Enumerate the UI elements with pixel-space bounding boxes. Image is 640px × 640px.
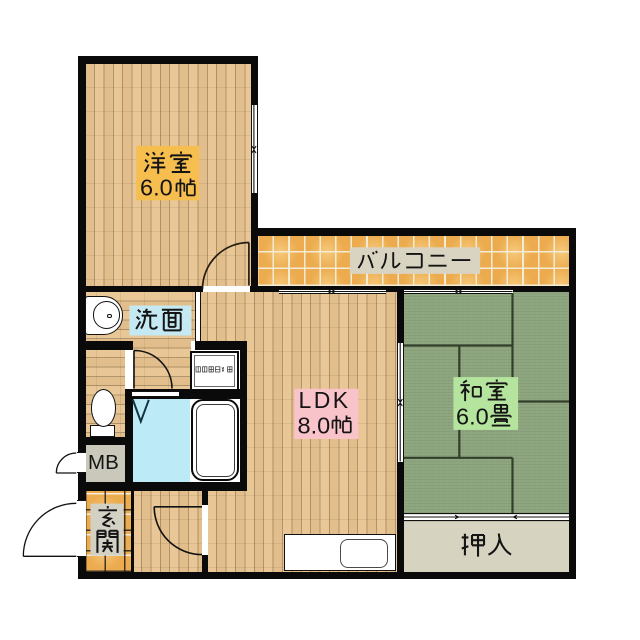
svg-text:LDK: LDK bbox=[299, 387, 351, 413]
svg-text:8.0: 8.0 bbox=[298, 413, 331, 439]
svg-text:6.0: 6.0 bbox=[456, 403, 489, 429]
svg-text:MB: MB bbox=[88, 451, 119, 474]
svg-text:6.0: 6.0 bbox=[140, 174, 173, 200]
